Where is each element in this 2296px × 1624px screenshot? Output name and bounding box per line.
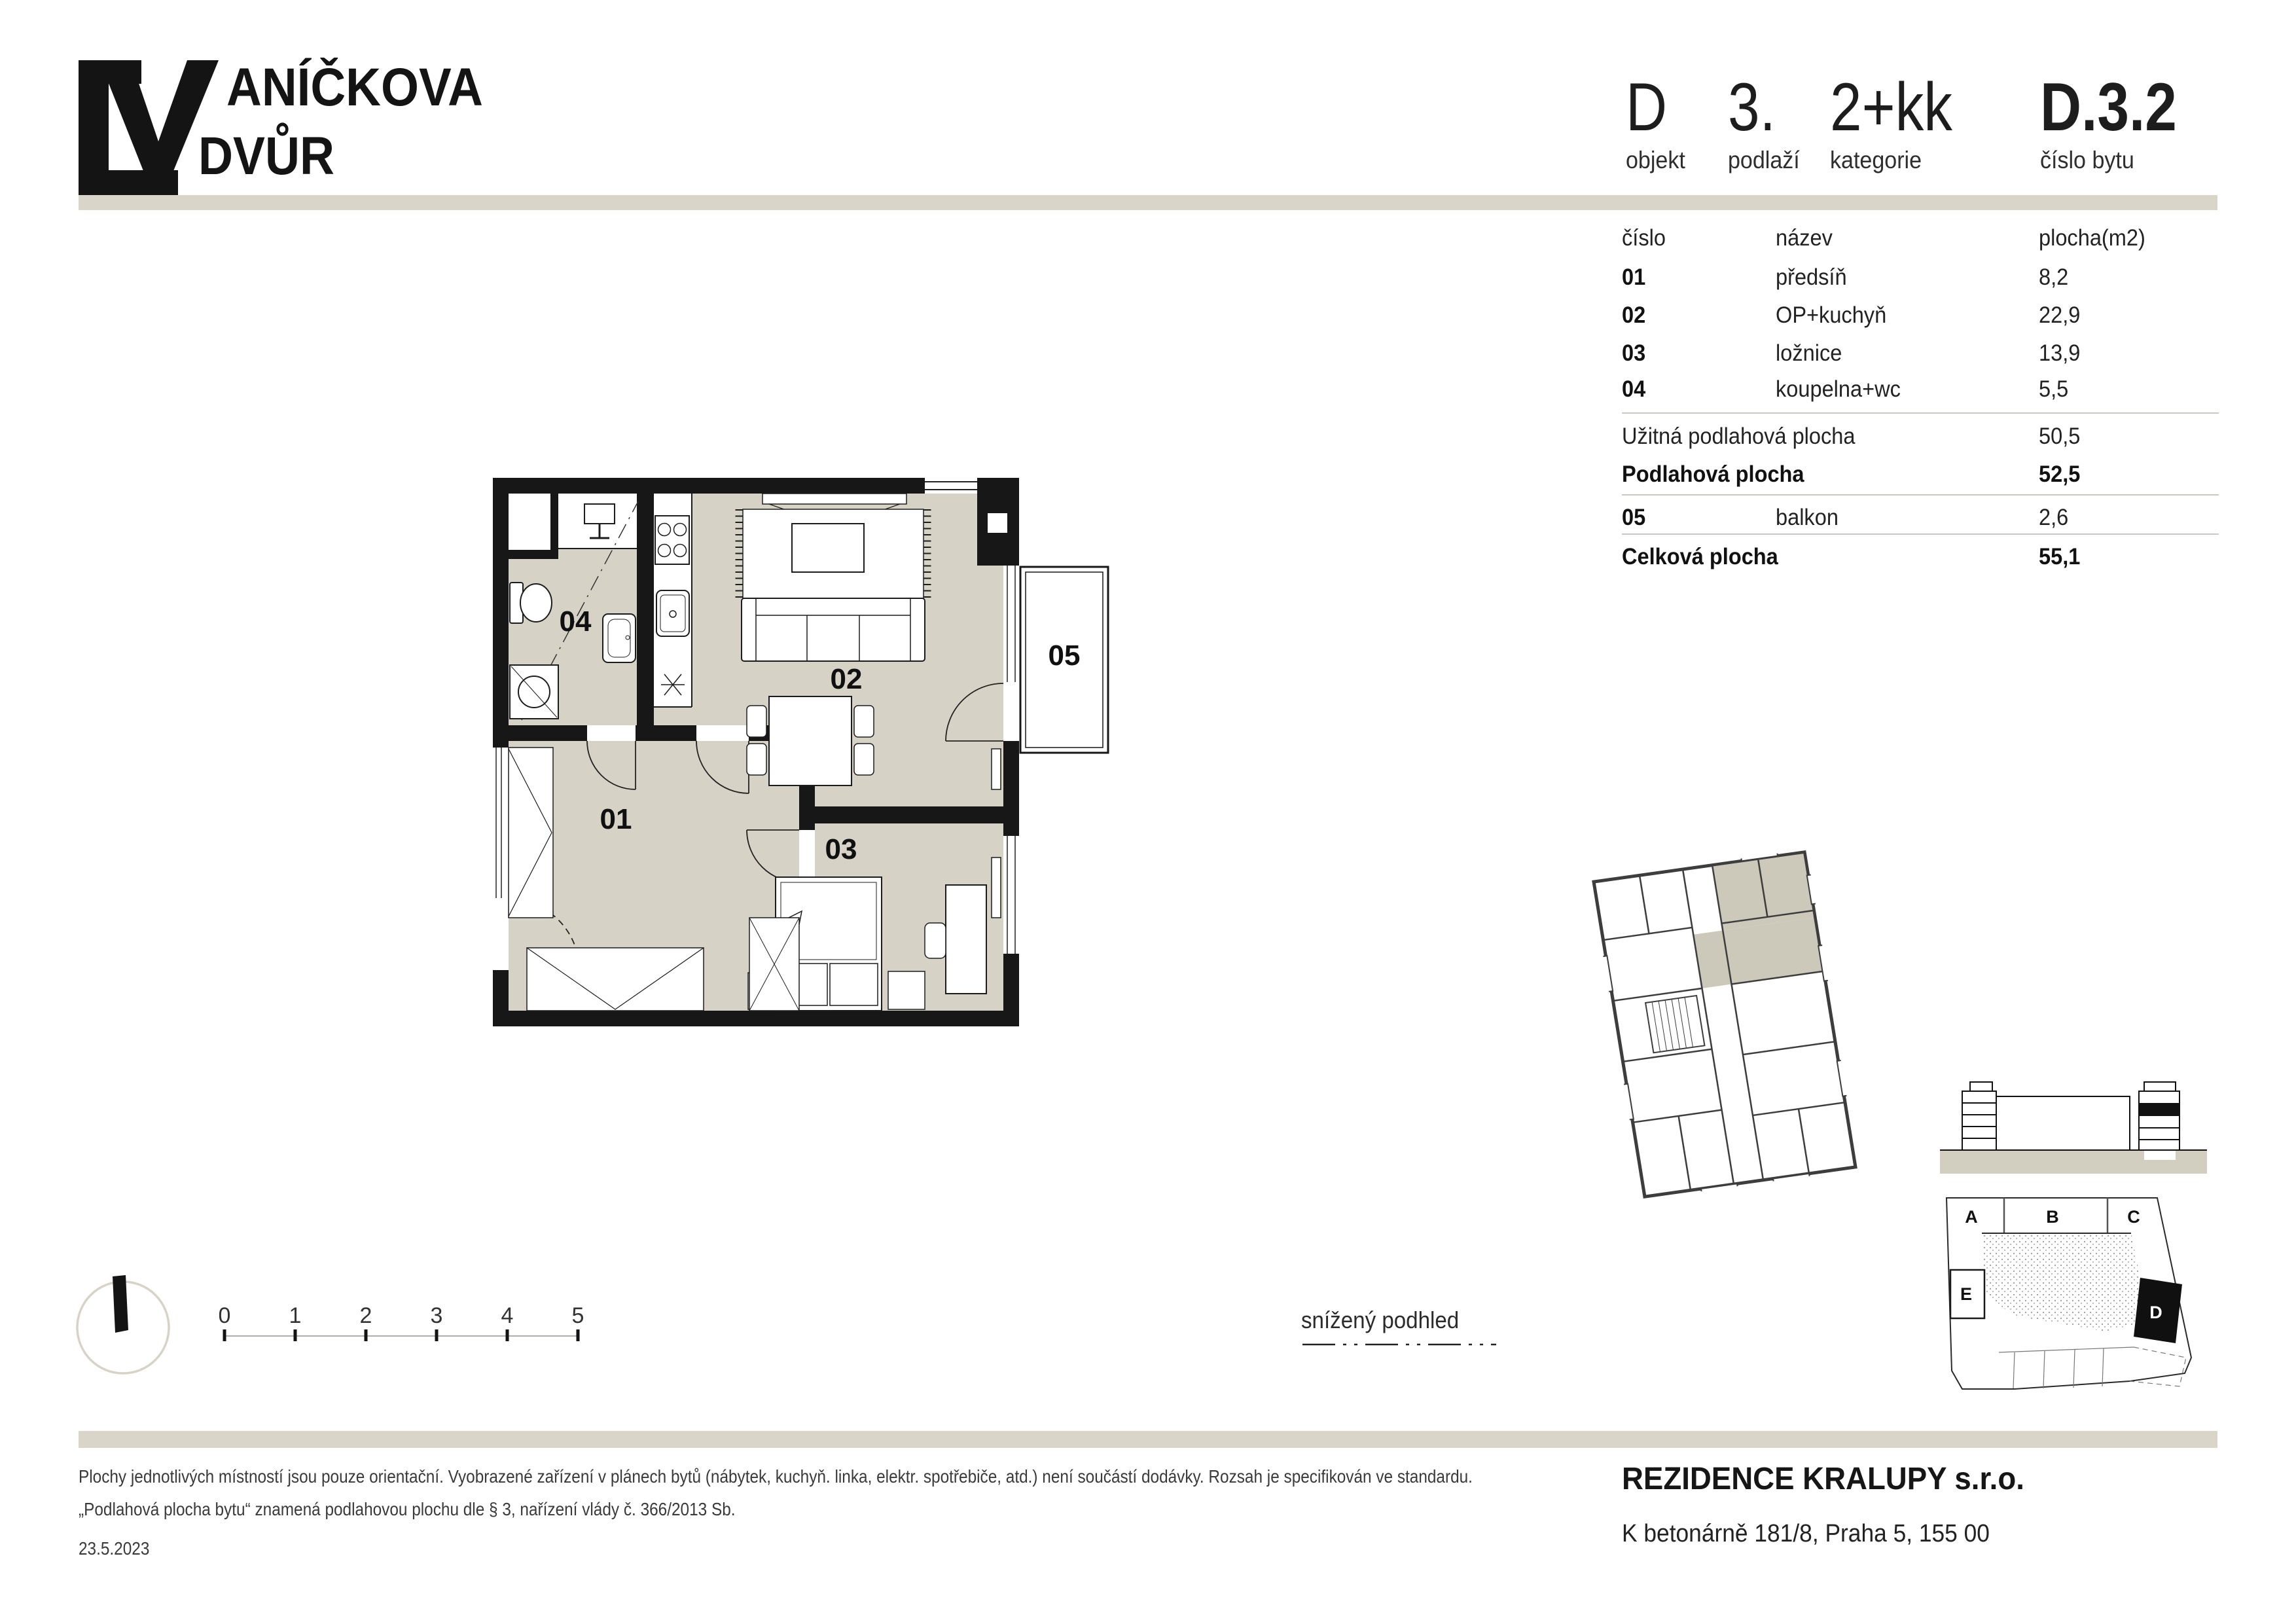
kategorie-value: 2+kk — [1830, 73, 1952, 141]
room-label-03: 03 — [825, 833, 857, 865]
nightstand-icon — [888, 971, 925, 1009]
toilet-bowl-icon — [520, 584, 552, 622]
floor-area-value: 52,5 — [2039, 462, 2080, 488]
wardrobe-icon — [509, 748, 553, 918]
company-name: REZIDENCE KRALUPY s.r.o. — [1622, 1461, 2024, 1497]
room-label-05: 05 — [1049, 640, 1081, 672]
objekt-label: objekt — [1626, 148, 1685, 172]
desk-icon — [946, 885, 986, 994]
chair-icon — [854, 744, 874, 775]
floor-area-label: Podlahová plocha — [1622, 462, 1804, 488]
row-area: 22,9 — [2039, 303, 2080, 329]
col-header-number: číslo — [1622, 226, 1666, 251]
room-label-02: 02 — [831, 663, 863, 695]
tv-cabinet-icon — [762, 494, 906, 504]
company-address: K betonárně 181/8, Praha 5, 155 00 — [1622, 1520, 1990, 1548]
disclaimer-line2: „Podlahová plocha bytu“ znamená podlahov… — [79, 1500, 736, 1519]
highlighted-floor — [2139, 1103, 2179, 1116]
objekt-value: D — [1626, 73, 1667, 141]
row-number: 01 — [1622, 265, 1645, 291]
disclaimer-line1: Plochy jednotlivých místností jsou pouze… — [79, 1468, 1473, 1486]
top-divider-bar — [79, 195, 2217, 210]
logo-word-top: ANÍČKOVA — [226, 58, 483, 117]
desk-chair-icon — [925, 923, 946, 958]
kategorie-label: kategorie — [1830, 148, 1922, 172]
sofa-icon — [742, 598, 925, 661]
balcony-area: 2,6 — [2039, 505, 2068, 531]
chair-icon — [747, 744, 766, 775]
logo-bracket-icon — [79, 60, 219, 196]
tv-icon — [792, 524, 864, 572]
staircase-icon — [1645, 996, 1704, 1053]
podlazi-value: 3. — [1728, 73, 1776, 141]
header-field-podlazi: 3. — [1728, 73, 1785, 141]
footer-divider-bar — [79, 1431, 2217, 1448]
building-body — [1996, 1096, 2130, 1150]
shower-fixture-icon — [584, 504, 615, 524]
total-area-label: Celková plocha — [1622, 545, 1778, 570]
room-label-04: 04 — [560, 605, 592, 638]
block-label-a: A — [1965, 1207, 1978, 1227]
dining-table-icon — [769, 696, 852, 785]
chair-icon — [747, 706, 766, 737]
block-label-d: D — [2149, 1303, 2162, 1322]
row-name: předsíň — [1776, 265, 1847, 291]
row-number: 02 — [1622, 303, 1645, 329]
row-number: 04 — [1622, 377, 1645, 403]
chair-icon — [854, 706, 874, 737]
block-label-c: C — [2127, 1207, 2140, 1227]
header-unit-number: D.3.2 — [2040, 73, 2203, 141]
scale-tick-label: 1 — [289, 1306, 302, 1328]
radiator-icon — [992, 749, 1001, 789]
col-header-area: plocha(m2) — [2039, 226, 2145, 251]
col-header-name: název — [1776, 226, 1833, 251]
scale-tick-label: 2 — [360, 1306, 372, 1328]
balcony-name: balkon — [1776, 505, 1839, 531]
scale-tick-label: 4 — [501, 1306, 514, 1328]
scale-tick-label: 0 — [219, 1306, 230, 1328]
date: 23.5.2023 — [79, 1540, 149, 1558]
floorplan-sheet: ANÍČKOVA DVŮR D objekt 3. podlaží 2+kk k… — [0, 0, 2296, 1624]
row-area: 8,2 — [2039, 265, 2068, 291]
total-area-value: 55,1 — [2039, 545, 2080, 570]
row-area: 13,9 — [2039, 341, 2080, 367]
site-plan: A B C E D — [1936, 1193, 2224, 1402]
scale-bar: 0 1 2 3 4 5 — [219, 1306, 586, 1352]
apartment-floorplan: 04 01 02 03 05 — [488, 466, 1116, 1049]
block-label-b: B — [2046, 1207, 2059, 1227]
podlazi-label: podlaží — [1728, 148, 1800, 172]
table-divider — [1622, 412, 2219, 414]
logo: ANÍČKOVA DVŮR — [75, 56, 573, 206]
stove-icon — [655, 516, 689, 564]
unit-number-label: číslo bytu — [2040, 148, 2134, 172]
room-label-01: 01 — [600, 803, 632, 835]
building-elevation — [1936, 1077, 2211, 1175]
header-field-kategorie: 2+kk — [1830, 73, 1976, 141]
header-field-objekt: D — [1626, 73, 1675, 141]
row-area: 5,5 — [2039, 377, 2068, 403]
usable-area-label: Užitná podlahová plocha — [1622, 424, 1855, 450]
row-name: ložnice — [1776, 341, 1842, 367]
scale-tick-label: 5 — [572, 1306, 584, 1328]
north-arrow-icon — [73, 1269, 178, 1380]
area-table: číslo název plocha(m2) 01 předsíň 8,2 02… — [1622, 223, 2219, 579]
row-name: OP+kuchyň — [1776, 303, 1886, 329]
building-floor-overview — [1590, 849, 1858, 1199]
lowered-ceiling-linestyle — [1301, 1342, 1498, 1347]
row-number: 03 — [1622, 341, 1645, 367]
row-name: koupelna+wc — [1776, 377, 1901, 403]
radiator-icon — [992, 857, 1001, 918]
logo-word-bottom: DVŮR — [198, 122, 334, 186]
scale-tick-label: 3 — [431, 1306, 443, 1328]
usable-area-value: 50,5 — [2039, 424, 2080, 450]
wardrobe-icon — [527, 948, 704, 1011]
balcony-number: 05 — [1622, 505, 1645, 531]
table-divider — [1622, 494, 2219, 496]
lowered-ceiling-label: snížený podhled — [1301, 1307, 1459, 1334]
block-label-e: E — [1960, 1284, 1972, 1304]
installation-shaft — [509, 494, 550, 551]
unit-number-value: D.3.2 — [2040, 73, 2177, 141]
table-divider — [1622, 533, 2219, 535]
